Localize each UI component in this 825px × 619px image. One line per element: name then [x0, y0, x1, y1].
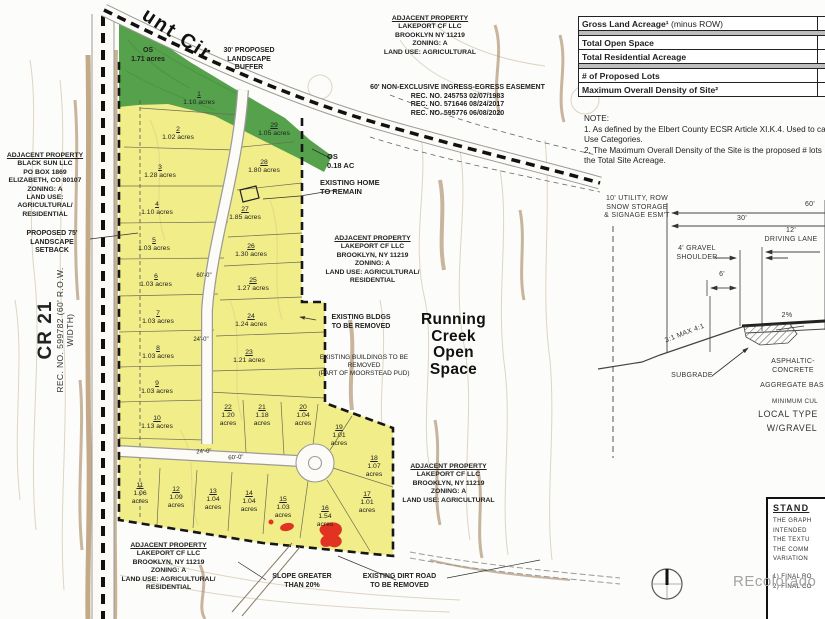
- lot-label-8: 81.03 acres: [134, 345, 182, 361]
- annotation-pct: 2%: [776, 312, 798, 321]
- annotation-setback: PROPOSED 75' LANDSCAPE SETBACK: [14, 230, 90, 256]
- lot-label-24: 241.24 acres: [227, 313, 275, 329]
- annotation-home: EXISTING HOME TO REMAIN: [320, 178, 398, 196]
- annotation-slope: SLOPE GREATER THAN 20%: [264, 573, 340, 590]
- annotation-rcos: Running Creek Open Space: [405, 312, 502, 378]
- lot-label-26: 261.30 acres: [227, 243, 275, 259]
- lot-label-22: 221.20 acres: [215, 404, 241, 428]
- cr21-name: CR 21: [36, 265, 55, 395]
- table-value-cell: [818, 50, 825, 64]
- lot-label-3: 31.28 acres: [136, 164, 184, 180]
- lot-label-21: 211.18 acres: [249, 404, 275, 428]
- lot-label-7: 71.03 acres: [134, 310, 182, 326]
- lot-label-11: 111.06 acres: [127, 482, 153, 506]
- annotation-ap-bottom: ADJACENT PROPERTYLAKEPORT CF LLC BROOKLY…: [116, 542, 221, 592]
- lot-label-28: 281.80 acres: [240, 159, 288, 175]
- table-value-cell: [818, 69, 825, 83]
- note-line: Use Categories.: [584, 135, 825, 146]
- annotation-subgrade: SUBGRADE: [668, 372, 716, 381]
- table-value-cell: [818, 17, 825, 31]
- lot-label-5: 51.03 acres: [130, 237, 178, 253]
- annotation-ap-top: ADJACENT PROPERTYLAKEPORT CF LLC BROOKLY…: [380, 15, 480, 57]
- table-row: # of Proposed Lots: [579, 69, 825, 83]
- cr21-road-label: CR 21 REC. NO. 599782 (60' R.O.W. WIDTH): [36, 265, 78, 395]
- lot-label-23: 231.21 acres: [225, 349, 273, 365]
- lot-label-9: 91.03 acres: [133, 380, 181, 396]
- lot-label-10: 101.13 acres: [133, 415, 181, 431]
- lot-label-29: 291.05 acres: [250, 122, 298, 138]
- lot-label-14: 141.04 acres: [236, 490, 262, 514]
- lot-label-17: 171.01 acres: [354, 491, 380, 515]
- annotation-ap-right: ADJACENT PROPERTYLAKEPORT CF LLC BROOKLY…: [396, 463, 501, 505]
- notes-block: NOTE:1. As defined by the Elbert County …: [584, 114, 825, 167]
- annotation-lane: 12' DRIVING LANE: [758, 227, 824, 244]
- lot-label-19: 191.01 acres: [326, 424, 352, 448]
- annotation-wgravel: W/GRAVEL: [757, 424, 825, 433]
- annotation-aggregate: AGGREGATE BAS: [756, 382, 825, 391]
- lot-label-13: 131.04 acres: [200, 488, 226, 512]
- lot-label-12: 121.09 acres: [163, 486, 189, 510]
- standard-box-line: THE COMM: [773, 546, 825, 556]
- annotation-ap-bottom-title: ADJACENT PROPERTY: [116, 542, 221, 550]
- note-line: 2. The Maximum Overall Density of the Si…: [584, 146, 825, 157]
- standard-notes-box: STAND THE GRAPHINTENDEDTHE TEXTUTHE COMM…: [766, 497, 825, 619]
- note-line: the Total Site Acreage.: [584, 156, 825, 167]
- standard-box-line: VARIATION: [773, 555, 825, 565]
- summary-table: Gross Land Acreage¹ (minus ROW)Total Ope…: [578, 16, 825, 97]
- annotation-dirt: EXISTING DIRT ROAD TO BE REMOVED: [352, 573, 447, 590]
- lot-label-15: 151.03 acres: [270, 496, 296, 520]
- annotation-asphalt: ASPHALTIC- CONCRETE: [764, 358, 822, 375]
- standard-box-line: THE GRAPH: [773, 517, 825, 527]
- standard-box-line: INTENDED: [773, 527, 825, 537]
- annotation-ap-mid: ADJACENT PROPERTYLAKEPORT CF LLC BROOKLY…: [320, 235, 425, 285]
- lot-label-20: 201.04 acres: [290, 404, 316, 428]
- lot-label-27: 271.85 acres: [221, 206, 269, 222]
- annotation-buffer: 30' PROPOSED LANDSCAPE BUFFER: [218, 47, 280, 73]
- table-row: Maximum Overall Density of Site²: [579, 83, 825, 97]
- annotation-gravel: 4' GRAVEL SHOULDER: [668, 245, 726, 262]
- annotation-ap-left-title: ADJACENT PROPERTY: [0, 152, 90, 160]
- lot-label-25: 251.27 acres: [229, 277, 277, 293]
- annotation-os1: OS 1.71 acres: [126, 47, 170, 64]
- plat-sheet: unt Cir CR 21 REC. NO. 599782 (60' R.O.W…: [0, 0, 825, 619]
- cr21-rec: REC. NO. 599782: [55, 318, 65, 393]
- annotation-os2: OS 0.18 AC: [327, 152, 371, 170]
- annotation-ap-right-title: ADJACENT PROPERTY: [396, 463, 501, 471]
- note-line: 1. As defined by the Elbert County ECSR …: [584, 125, 825, 136]
- annotation-utility: 10' UTILITY, ROW SNOW STORAGE & SIGNAGE …: [592, 195, 682, 221]
- annotation-ap-mid-title: ADJACENT PROPERTY: [320, 235, 425, 243]
- annotation-minimum: MINIMUM CUL: [763, 398, 825, 407]
- lot-label-4: 41.10 acres: [133, 201, 181, 217]
- standard-box-line: THE TEXTU: [773, 536, 825, 546]
- cr21-road: [88, 14, 116, 619]
- table-row: Total Open Space: [579, 36, 825, 50]
- annotation-dim6: 6': [712, 271, 732, 280]
- annotation-dim60: 60': [798, 201, 822, 210]
- table-value-cell: [818, 83, 825, 97]
- annotation-local: LOCAL TYPE: [750, 410, 825, 419]
- note-line: NOTE:: [584, 114, 825, 125]
- lot-label-2: 21.02 acres: [154, 126, 202, 142]
- table-row: Gross Land Acreage¹ (minus ROW): [579, 17, 825, 31]
- table-value-cell: [818, 36, 825, 50]
- annotation-easement: 60' NON-EXCLUSIVE INGRESS-EGRESS EASEMEN…: [365, 84, 550, 118]
- lot-label-18: 181.07 acres: [361, 455, 387, 479]
- annotation-bldgs: EXISTING BLDGS TO BE REMOVED: [318, 314, 404, 331]
- lot-label-16: 161.54 acres: [312, 505, 338, 529]
- watermark: REcolorado: [733, 573, 816, 590]
- lot-label-6: 61.03 acres: [132, 273, 180, 289]
- annotation-dim-b: 24'-0": [189, 337, 213, 344]
- table-row: Total Residential Acreage: [579, 50, 825, 64]
- annotation-ap-left: ADJACENT PROPERTYBLACK SUN LLC PO BOX 18…: [0, 152, 90, 219]
- north-arrow-icon: [652, 569, 682, 599]
- annotation-dim30: 30': [730, 215, 754, 224]
- standard-box-title: STAND: [773, 503, 825, 513]
- annotation-ap-top-title: ADJACENT PROPERTY: [380, 15, 480, 23]
- lot-label-1: 11.10 acres: [175, 91, 223, 107]
- annotation-dim-a: 60'-0": [192, 273, 216, 280]
